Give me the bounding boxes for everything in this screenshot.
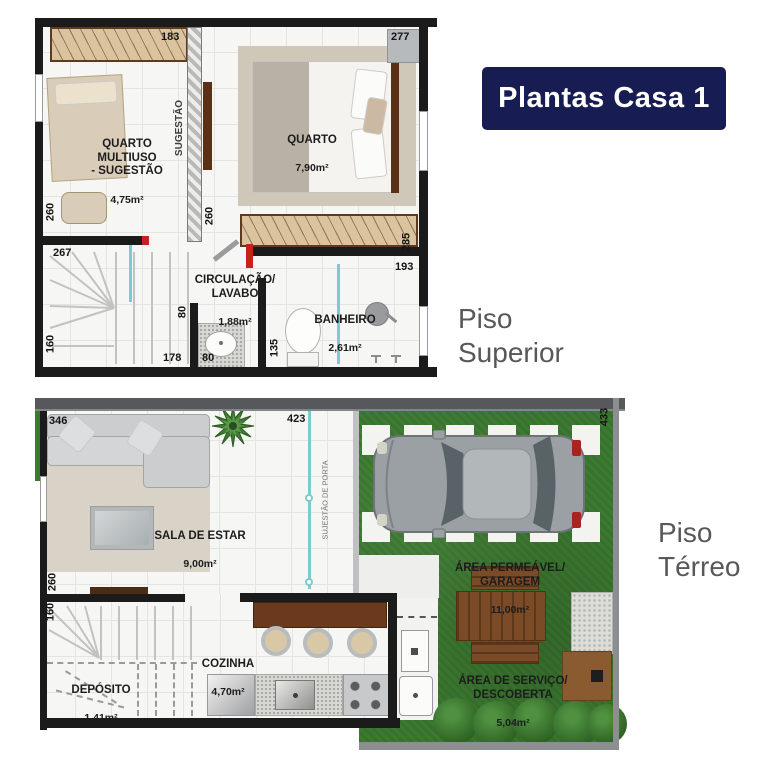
floorplan-piso-terreo: SALA DE ESTAR 9,00m² COZINHA 4,70m² DEPÓ… (35, 398, 625, 754)
dim-346: 346 (49, 416, 67, 427)
note-sugestao: SUGESTÃO (175, 100, 185, 156)
room-label-quarto-multiuso: QUARTO MULTIUSO - SUGESTÃO 4,75m² (77, 124, 177, 220)
door-leaf (203, 82, 212, 170)
room-area: 9,00m² (140, 558, 260, 571)
open-boundary-dash (397, 616, 437, 618)
deposito-dash (173, 664, 175, 716)
dim-260-left: 260 (46, 203, 57, 221)
dim-135: 135 (270, 339, 281, 357)
washer-knob (411, 648, 418, 655)
stool (303, 628, 333, 658)
room-label-quarto: QUARTO 7,90m² (267, 120, 357, 189)
room-label-garagem: ÁREA PERMEÁVEL/ GARAGEM 11,00m² (445, 548, 575, 631)
dim-285: 285 (402, 233, 413, 251)
dim-160: 160 (46, 603, 57, 621)
room-name: DEPÓSITO (56, 684, 146, 698)
room-name: BANHEIRO (295, 314, 395, 328)
dim-260-mid: 260 (205, 207, 216, 225)
stair-rail (129, 238, 132, 302)
wall-interior (42, 236, 142, 245)
stairs (48, 250, 198, 368)
room-area: 5,04m² (446, 717, 581, 730)
room-label-servico: ÁREA DE SERVIÇO/ DESCOBERTA 5,04m² (446, 661, 581, 744)
wall-left (40, 411, 47, 730)
room-area: 4,70m² (183, 686, 273, 699)
grill (591, 670, 603, 682)
gravel-patch (571, 592, 613, 654)
paved-passage (359, 555, 439, 598)
stove (343, 674, 389, 716)
wardrobe (240, 214, 418, 247)
room-area: 1,88m² (180, 316, 290, 329)
door-frame-mark (142, 236, 149, 245)
wall-kitchen-top (240, 593, 393, 602)
wall-kitchen-right (388, 593, 397, 728)
wall-interior (40, 594, 185, 602)
room-area: 11,00m² (445, 604, 575, 617)
room-name: ÁREA PERMEÁVEL/ GARAGEM (445, 562, 575, 590)
room-label-cozinha: COZINHA 4,70m² (183, 644, 273, 713)
window (419, 111, 428, 171)
dim-80-h: 80 (202, 353, 214, 364)
drain (293, 693, 298, 698)
window (419, 306, 428, 356)
title-badge: Plantas Casa 1 (482, 67, 726, 130)
room-area: 2,61m² (295, 342, 395, 355)
room-name: QUARTO (267, 134, 357, 148)
dim-193: 193 (395, 262, 413, 273)
deposito-dash (155, 664, 157, 716)
room-label-banheiro: BANHEIRO 2,61m² (295, 300, 395, 369)
room-label-circulacao: CIRCULAÇÃO/ LAVABO 1,88m² (180, 260, 290, 343)
stairs (47, 604, 197, 662)
dim-433: 433 (600, 408, 611, 426)
wall-sala-garage (353, 411, 359, 594)
room-area: 7,90m² (267, 162, 357, 175)
door-line-node (305, 494, 313, 502)
dim-178: 178 (163, 353, 181, 364)
room-name: COZINHA (183, 658, 273, 672)
headboard (391, 61, 399, 193)
pillow (54, 80, 117, 105)
kitchen-bar (253, 602, 387, 628)
car-top-view (371, 430, 587, 538)
margin (428, 16, 437, 377)
front-wall-band (35, 398, 625, 411)
caption-piso-superior: Piso Superior (458, 302, 593, 370)
lot-edge-right (613, 398, 619, 750)
dim-80-v: 80 (178, 306, 189, 318)
floorplan-piso-superior: QUARTO MULTIUSO - SUGESTÃO 4,75m² QUARTO… (35, 16, 437, 377)
window (35, 74, 43, 122)
door-line-node (305, 578, 313, 586)
room-area: 4,75m² (77, 194, 177, 207)
room-label-deposito: DEPÓSITO 1,41m² (56, 670, 146, 739)
room-name: CIRCULAÇÃO/ LAVABO (180, 274, 290, 302)
room-area: 1,41m² (56, 712, 146, 725)
page: Plantas Casa 1 Piso Superior Piso Térreo (0, 0, 771, 760)
wall-top (35, 18, 437, 27)
drain (413, 693, 418, 698)
dim-423: 423 (287, 414, 305, 425)
room-label-sala: SALA DE ESTAR 9,00m² (140, 516, 260, 585)
dim-277: 277 (391, 32, 409, 43)
room-name: SALA DE ESTAR (140, 530, 260, 544)
window (40, 476, 47, 522)
wall-left (35, 18, 43, 367)
stool (347, 628, 377, 658)
dim-260: 260 (48, 573, 59, 591)
suggested-wall (187, 27, 202, 242)
dim-160: 160 (46, 335, 57, 353)
room-name: QUARTO MULTIUSO - SUGESTÃO (77, 138, 177, 179)
dim-267: 267 (53, 248, 71, 259)
note-sugestao-porta: SUJESTÃO DE PORTA (321, 460, 329, 539)
bush (587, 704, 627, 744)
caption-piso-terreo: Piso Térreo (658, 516, 771, 584)
dim-183: 183 (161, 32, 179, 43)
room-name: ÁREA DE SERVIÇO/ DESCOBERTA (446, 675, 581, 703)
